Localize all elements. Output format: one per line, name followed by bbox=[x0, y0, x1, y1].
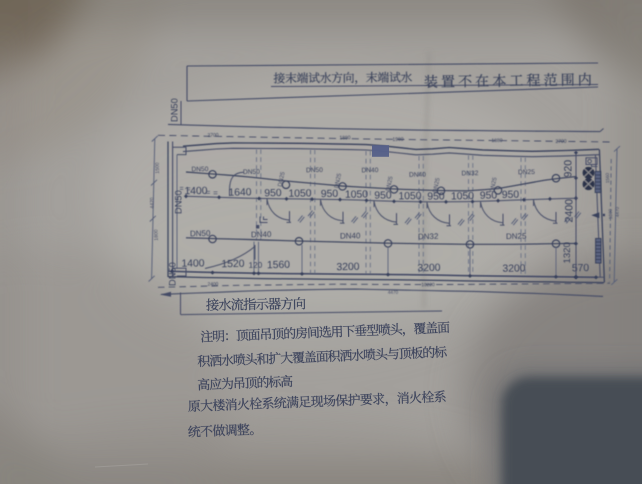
svg-text:1640: 1640 bbox=[228, 187, 252, 198]
svg-text:DN50: DN50 bbox=[306, 167, 323, 174]
svg-text:3200: 3200 bbox=[417, 263, 441, 274]
svg-text:1050: 1050 bbox=[398, 191, 422, 202]
svg-text:DN50: DN50 bbox=[190, 229, 211, 238]
svg-text:DN50: DN50 bbox=[243, 169, 260, 176]
svg-text:950: 950 bbox=[427, 191, 445, 202]
svg-text:1880: 1880 bbox=[491, 138, 502, 144]
svg-text:=: = bbox=[179, 186, 183, 193]
svg-text:3200: 3200 bbox=[502, 263, 526, 274]
svg-text:1050: 1050 bbox=[451, 191, 475, 202]
svg-text:120: 120 bbox=[249, 261, 263, 270]
svg-text:4470: 4470 bbox=[615, 206, 620, 217]
svg-text:2700: 2700 bbox=[207, 132, 218, 138]
svg-text:1800: 1800 bbox=[608, 208, 613, 219]
svg-text:DN50: DN50 bbox=[191, 166, 208, 173]
svg-text:DN32: DN32 bbox=[461, 170, 478, 177]
svg-text:2400: 2400 bbox=[564, 199, 576, 223]
svg-text:1560: 1560 bbox=[267, 260, 291, 271]
svg-text:DN40: DN40 bbox=[340, 231, 361, 240]
svg-text:=: = bbox=[186, 186, 190, 193]
svg-text:570: 570 bbox=[572, 263, 590, 274]
svg-text:=: = bbox=[206, 188, 211, 197]
svg-text:1400: 1400 bbox=[181, 258, 205, 269]
svg-text:1980: 1980 bbox=[392, 137, 403, 143]
svg-text:DN25: DN25 bbox=[506, 232, 527, 241]
svg-text:DN32: DN32 bbox=[418, 232, 439, 241]
svg-text:1320: 1320 bbox=[562, 242, 573, 263]
svg-text:2700: 2700 bbox=[555, 139, 566, 145]
svg-text:950: 950 bbox=[502, 190, 520, 201]
svg-text:950: 950 bbox=[374, 190, 392, 201]
svg-text:DN50: DN50 bbox=[174, 190, 184, 214]
svg-text:3200: 3200 bbox=[336, 262, 360, 273]
svg-text:2400: 2400 bbox=[208, 282, 219, 288]
svg-text:4470: 4470 bbox=[149, 197, 155, 208]
svg-text:DN40: DN40 bbox=[409, 172, 426, 179]
svg-text:1880: 1880 bbox=[339, 135, 350, 141]
svg-text:920: 920 bbox=[563, 160, 575, 178]
svg-text:1050: 1050 bbox=[288, 188, 312, 199]
svg-text:DN50: DN50 bbox=[168, 262, 178, 286]
svg-text:1560: 1560 bbox=[605, 172, 610, 183]
svg-text:DN25: DN25 bbox=[518, 169, 535, 176]
svg-text:950: 950 bbox=[321, 189, 339, 200]
svg-text:DN40: DN40 bbox=[361, 167, 378, 174]
svg-text:950: 950 bbox=[264, 188, 282, 199]
svg-text:1050: 1050 bbox=[345, 189, 369, 200]
svg-text:=: = bbox=[213, 188, 218, 197]
svg-text:10220: 10220 bbox=[421, 282, 435, 288]
svg-text:1800: 1800 bbox=[153, 229, 159, 240]
svg-text:950: 950 bbox=[480, 190, 498, 201]
svg-text:1500: 1500 bbox=[155, 162, 161, 173]
svg-text:DN40: DN40 bbox=[251, 230, 272, 239]
svg-text:DN50: DN50 bbox=[170, 98, 180, 122]
svg-text:1520: 1520 bbox=[221, 259, 245, 270]
